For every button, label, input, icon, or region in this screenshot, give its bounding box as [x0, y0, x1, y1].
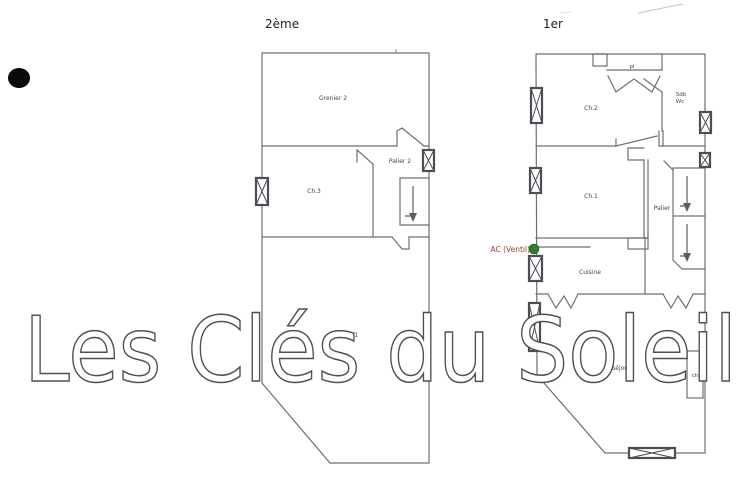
room-label-sdb: Sdb — [676, 92, 687, 98]
room-label-palier2: Palier 2 — [389, 158, 411, 165]
pen-mark — [638, 4, 683, 13]
plan1-flue — [628, 148, 644, 160]
watermark: Les Clés du Soleil — [24, 298, 737, 403]
plan1-chimney-notch — [593, 54, 607, 66]
window-icon — [529, 256, 542, 281]
plan1-door-jamb — [659, 131, 663, 146]
window-icon — [629, 448, 675, 458]
window-icon — [531, 88, 542, 123]
floor-plan-canvas: 2ème Grenier 2 Ch.3 — [0, 0, 740, 493]
plan1-pl-doors — [608, 76, 660, 92]
floor-plan-page: 2ème Grenier 2 Ch.3 — [0, 0, 740, 493]
room-label-pl: pl — [629, 64, 634, 70]
stairs-2eme-icon — [400, 178, 429, 225]
room-label-wc: Wc — [676, 99, 684, 105]
window-icon — [256, 178, 268, 205]
room-label-grenier2: Grenier 2 — [319, 95, 347, 102]
plan1-wall-ch1-right — [644, 160, 648, 294]
room-label-cuisine: Cuisine — [579, 269, 601, 276]
window-icon — [423, 150, 434, 171]
window-icon — [700, 153, 710, 167]
room-label-ch2: Ch.2 — [584, 105, 598, 112]
window-icon — [530, 168, 541, 193]
plan2-door-ch3 — [357, 150, 373, 164]
room-label-ch1: Ch.1 — [584, 193, 598, 200]
room-label-palier: Palier — [654, 205, 671, 212]
window-icon — [700, 112, 711, 133]
plan1-wall-cuisine-top — [536, 238, 648, 247]
scan-dot — [8, 68, 30, 88]
ac-ventil-label: AC (Ventil) — [491, 245, 531, 254]
stairs-1er-icon — [664, 161, 705, 269]
floor-title-1er: 1er — [543, 17, 563, 31]
plan2-door-grenier2 — [397, 128, 424, 146]
pen-smudge — [560, 12, 572, 13]
ac-ventil-marker — [529, 244, 539, 254]
room-label-ch3: Ch.3 — [307, 188, 321, 195]
plan1-door-ch2 — [616, 136, 657, 146]
plan2-door-grenier1 — [392, 237, 409, 249]
floor-title-2eme: 2ème — [265, 17, 299, 31]
